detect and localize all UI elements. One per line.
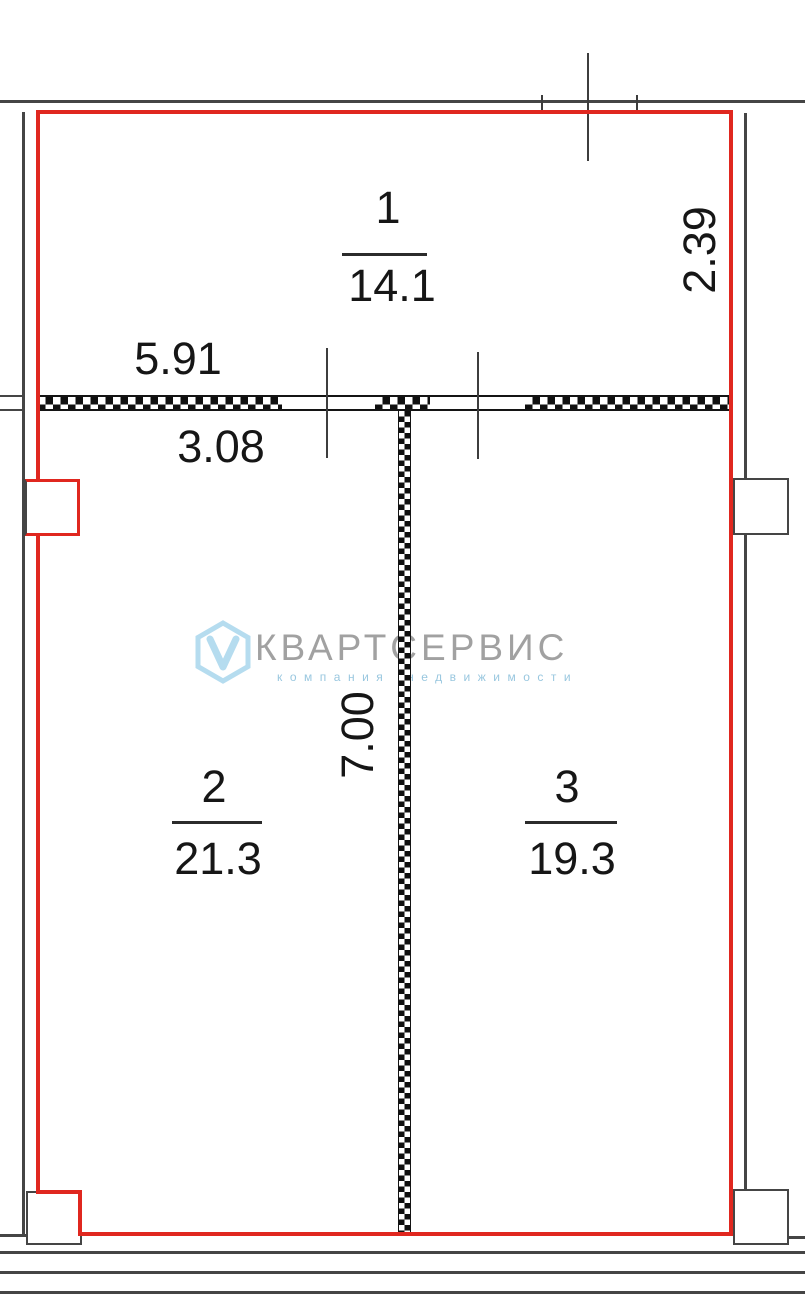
room-3-divider [525, 821, 617, 824]
watermark-tagline: компания недвижимости [277, 670, 578, 684]
dimension-tick-middle-left [326, 348, 328, 458]
unit-boundary-step-horizontal [36, 1190, 82, 1194]
watermark-brand: КВАРТСЕРВИС [255, 628, 568, 668]
hatch-segment-left [38, 397, 282, 409]
room-2-number: 2 [164, 762, 264, 812]
unit-boundary-step-vertical [78, 1190, 82, 1236]
column-box-bottom-left [26, 1191, 82, 1245]
wall-stub-left [0, 395, 23, 411]
room-3-number: 3 [517, 762, 617, 812]
hatch-segment-middle [375, 397, 430, 409]
room-2-area: 21.3 [158, 834, 278, 884]
hatch-segment-right [525, 397, 729, 409]
dimension-tick-top-long [587, 53, 589, 161]
unit-boundary-left-upper [36, 110, 40, 482]
unit-boundary-right [729, 110, 733, 1236]
partition-wall-vertical [398, 411, 411, 1233]
outer-wall-top-line [0, 100, 805, 103]
outer-wall-right-line [744, 113, 747, 1191]
dimension-tick-middle-right [477, 352, 479, 459]
dimension-opening-width: 3.08 [160, 422, 282, 472]
room-1-area: 14.1 [332, 261, 452, 311]
room-2-divider [172, 821, 262, 824]
floor-slab-line-1 [0, 1251, 805, 1254]
room-3-area: 19.3 [512, 834, 632, 884]
dimension-partition-length: 7.00 [333, 675, 383, 795]
dimension-height-right: 2.39 [675, 190, 725, 310]
partition-wall-horizontal [38, 395, 729, 411]
room-1-divider [342, 253, 427, 256]
outer-wall-left-line [22, 112, 25, 1236]
unit-boundary-bottom [78, 1232, 733, 1236]
floor-slab-line-3 [0, 1291, 805, 1294]
outer-wall-bottom-left-line [0, 1234, 28, 1237]
unit-boundary-top [36, 110, 733, 114]
unit-boundary-left-lower [36, 533, 40, 1192]
floor-slab-line-2 [0, 1271, 805, 1274]
floor-plan: КВАРТСЕРВИС компания недвижимости 1 14.1 [0, 0, 805, 1316]
niche-box-left [25, 479, 80, 536]
column-box-right [733, 478, 789, 535]
door-opening-1 [282, 397, 375, 409]
dimension-wall-width-top: 5.91 [118, 334, 238, 384]
hexagon-logo-icon [195, 620, 251, 684]
column-box-bottom-right [733, 1189, 789, 1245]
room-1-number: 1 [338, 183, 438, 233]
